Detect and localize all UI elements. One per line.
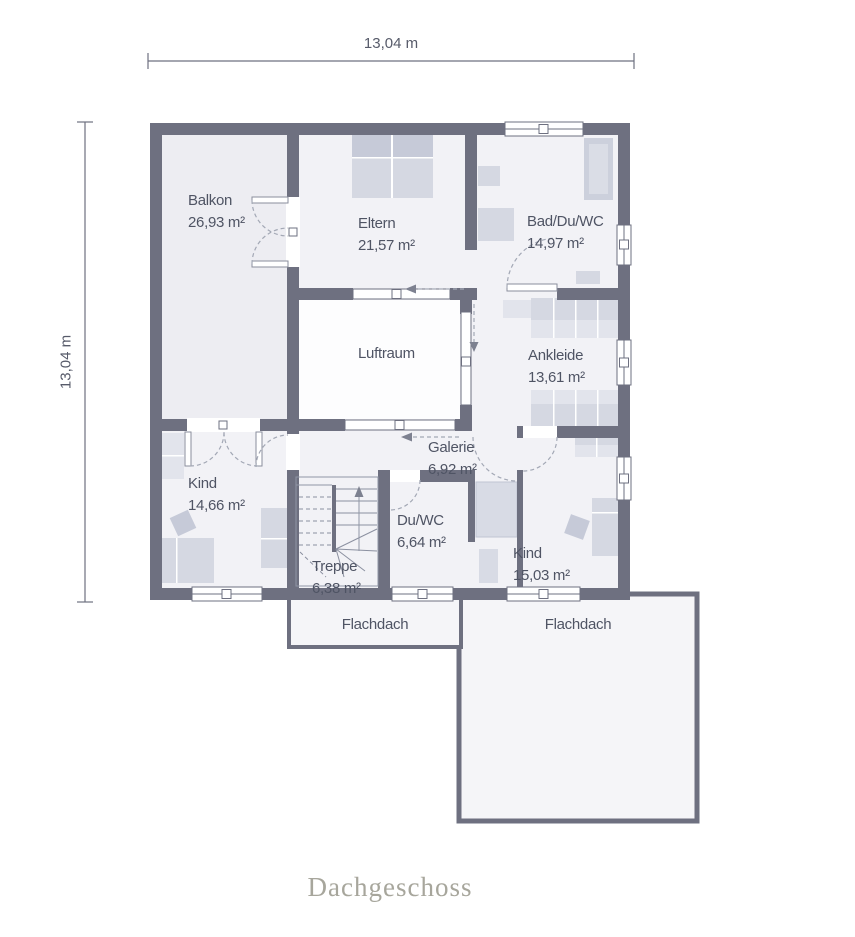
room-name: Luftraum <box>358 343 415 365</box>
room-label-ankleide: Ankleide 13,61 m² <box>528 345 585 389</box>
room-label-galerie: Galerie 6,92 m² <box>428 437 477 481</box>
dimension-height-label: 13,04 m <box>58 335 75 389</box>
room-label-bad-du-wc: Bad/Du/WC 14,97 m² <box>527 211 604 255</box>
wardrobe-north <box>531 298 618 338</box>
room-label-balkon: Balkon 26,93 m² <box>188 190 245 234</box>
room-area: 21,57 m² <box>358 235 415 257</box>
room-area: 6,64 m² <box>397 532 446 554</box>
room-name: Treppe <box>312 556 361 578</box>
double-bed <box>352 134 433 198</box>
window <box>617 340 631 385</box>
room-area: 15,03 m² <box>513 565 570 587</box>
room-label-luftraum: Luftraum <box>358 343 415 365</box>
room-area: 26,93 m² <box>188 212 245 234</box>
window <box>505 122 583 136</box>
room-area: 6,92 m² <box>428 459 477 481</box>
floor-plan-canvas: 13,04 m 13,04 m Balkon 26,93 m² Eltern 2… <box>0 0 855 937</box>
room-name: Balkon <box>188 190 245 212</box>
room-label-kind-sued: Kind 15,03 m² <box>513 543 570 587</box>
shower-cabin <box>476 482 517 537</box>
shower <box>478 208 514 241</box>
room-name: Du/WC <box>397 510 446 532</box>
balcony-floor <box>162 131 287 419</box>
window <box>392 587 453 601</box>
room-area: 6,38 m² <box>312 578 361 600</box>
flat-roof-small-label: Flachdach <box>289 616 461 633</box>
room-name: Ankleide <box>528 345 585 367</box>
room-label-du-wc: Du/WC 6,64 m² <box>397 510 446 554</box>
washbasin <box>478 166 500 186</box>
room-name: Galerie <box>428 437 477 459</box>
bath-cabinet <box>576 271 600 284</box>
page-title: Dachgeschoss <box>308 872 473 903</box>
room-area: 14,66 m² <box>188 495 245 517</box>
window <box>192 587 262 601</box>
dresser <box>503 300 531 318</box>
wardrobe-south <box>531 390 618 427</box>
window <box>617 225 631 265</box>
room-area: 14,97 m² <box>527 233 604 255</box>
wc <box>479 549 498 583</box>
dimension-width-label: 13,04 m <box>148 35 634 52</box>
bathtub <box>584 138 613 200</box>
room-label-treppe: Treppe 6,38 m² <box>312 556 361 600</box>
window <box>617 457 631 500</box>
room-name: Bad/Du/WC <box>527 211 604 233</box>
room-label-eltern: Eltern 21,57 m² <box>358 213 415 257</box>
room-name: Kind <box>188 473 245 495</box>
room-name: Eltern <box>358 213 415 235</box>
window <box>507 587 580 601</box>
room-area: 13,61 m² <box>528 367 585 389</box>
room-name: Kind <box>513 543 570 565</box>
room-label-kind-west: Kind 14,66 m² <box>188 473 245 517</box>
flat-roof-large-label: Flachdach <box>459 616 697 633</box>
